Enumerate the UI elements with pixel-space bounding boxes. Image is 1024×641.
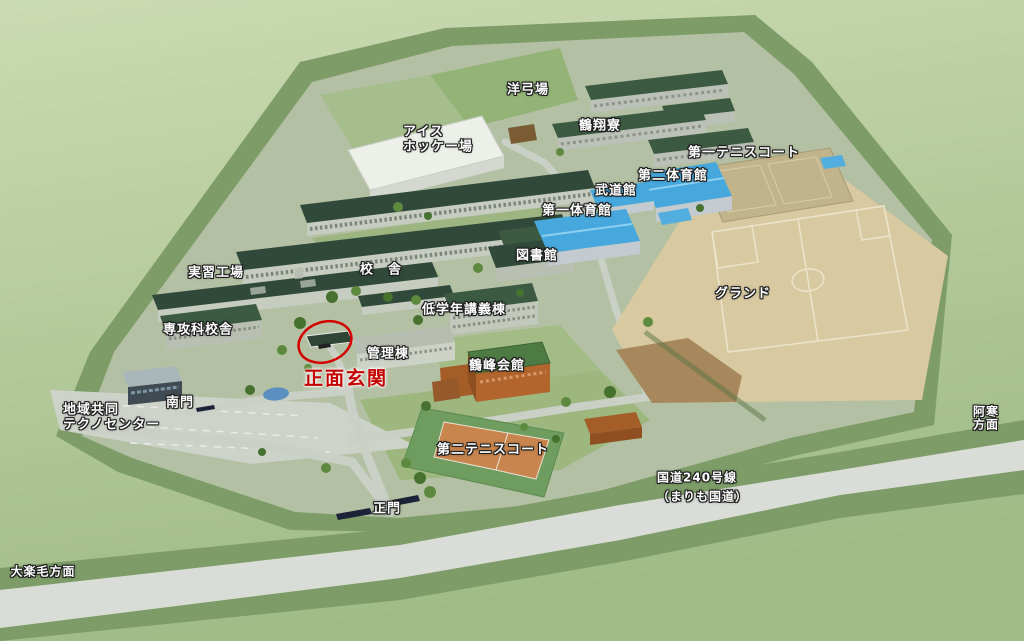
campus-map: 洋弓場鶴翔寮アイス ホッケー場第一テニスコート第二体育館武道館第一体育館図書館校…: [0, 0, 1024, 641]
map-illustration: [0, 0, 1024, 641]
building-techno-center: [122, 366, 182, 405]
